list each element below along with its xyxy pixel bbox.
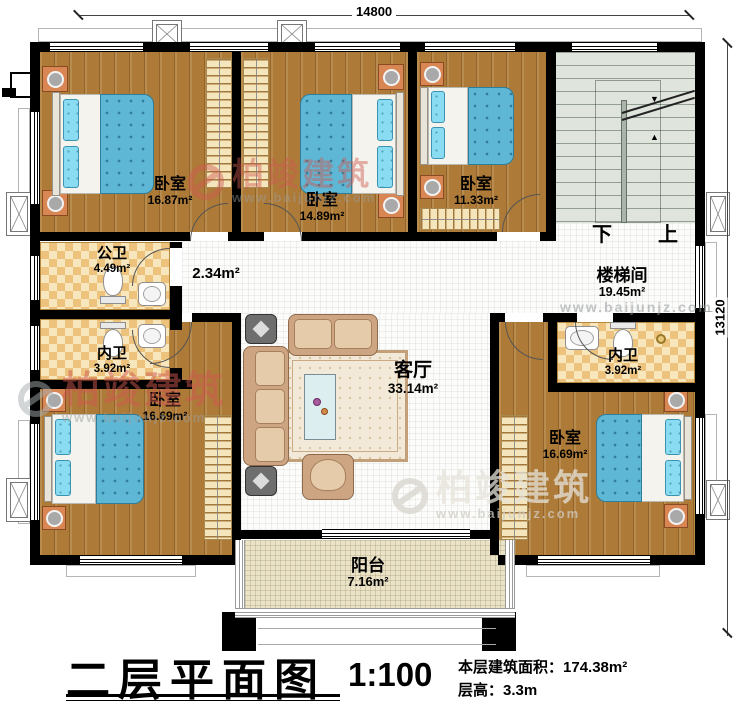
bath-left-name: 内卫 xyxy=(77,346,147,363)
hallway-area: 2.34m² xyxy=(180,266,252,283)
bedroom-tr-pillow-1 xyxy=(431,91,445,123)
bedroom-br-area: 16.69m² xyxy=(525,448,605,461)
title-scale: 1:100 xyxy=(348,656,432,694)
bath-left-toilet-tank xyxy=(100,322,126,329)
wall-living-east xyxy=(490,313,499,539)
stair-arrow-up-icon: ▲ xyxy=(650,132,659,142)
bedroom-bl-pillow-1 xyxy=(55,419,71,455)
bedroom-tl-label: 卧室 16.87m² xyxy=(130,176,210,207)
wall-bath-divider xyxy=(40,310,182,319)
public-bath-toilet-tank xyxy=(100,296,126,304)
sofa-left-cushion-2 xyxy=(255,389,285,424)
sofa-top-cushion-1 xyxy=(294,319,332,349)
wall-corridor-top-2 xyxy=(228,232,264,241)
window-bottom-br xyxy=(538,555,650,565)
bedroom-bl-headboard xyxy=(44,416,52,502)
wall-bath-east-1 xyxy=(170,242,182,248)
window-top-stair xyxy=(572,42,657,52)
bedroom-bl-nightstand-1 xyxy=(42,388,66,412)
bedroom-tm-area: 14.89m² xyxy=(282,210,362,223)
balcony-name: 阳台 xyxy=(330,556,406,575)
window-left-bath xyxy=(30,326,40,370)
wall-br-top-1 xyxy=(490,313,505,322)
bedroom-tr-wardrobe xyxy=(420,208,500,230)
window-left-pubbath xyxy=(30,256,40,300)
bedroom-tr-nightstand-1 xyxy=(420,62,444,86)
title-height-label: 层高： xyxy=(458,682,503,699)
stairs-up-label: 上 xyxy=(650,224,686,246)
bedroom-br-wardrobe xyxy=(501,415,528,540)
chimney-flue xyxy=(2,88,16,97)
balcony-label: 阳台 7.16m² xyxy=(330,556,406,590)
wall-corridor-top-3 xyxy=(302,232,497,241)
living-area: 33.14m² xyxy=(370,381,456,396)
balcony-rail-left xyxy=(235,540,245,612)
bedroom-br-pillow-1 xyxy=(665,419,681,455)
stairwell-area: 19.45m² xyxy=(582,285,662,299)
bedroom-tm-headboard xyxy=(396,92,404,196)
bedroom-tr-bed xyxy=(468,87,514,165)
living-coffee-table xyxy=(304,374,336,440)
window-top-tl xyxy=(50,42,143,52)
title-area-label: 本层建筑面积： xyxy=(458,659,563,676)
balcony-rail-right xyxy=(505,540,515,612)
window-bottom-bl xyxy=(80,555,182,565)
wall-tl-tm xyxy=(232,52,241,232)
bedroom-br-headboard xyxy=(684,416,692,500)
bedroom-br-name: 卧室 xyxy=(525,430,605,448)
dim-width-value: 14800 xyxy=(352,4,396,19)
bedroom-tm-name: 卧室 xyxy=(282,192,362,210)
bedroom-tm-pillow-1 xyxy=(377,99,393,141)
bedroom-tm-label: 卧室 14.89m² xyxy=(282,192,362,223)
living-end-table-top xyxy=(245,314,277,344)
wall-living-south-2 xyxy=(470,530,490,539)
bedroom-bl-area: 16.69m² xyxy=(125,410,205,423)
public-bath-area: 4.49m² xyxy=(77,263,147,276)
window-left-bl xyxy=(30,424,40,520)
wall-corridor-top-4 xyxy=(540,232,556,241)
armchair-cushion xyxy=(310,459,346,491)
wall-bath-right-bottom xyxy=(557,383,695,392)
sofa-top-cushion-2 xyxy=(334,319,372,349)
bedroom-tm-bed xyxy=(300,94,352,194)
bedroom-br-nightstand-2 xyxy=(664,504,688,528)
balcony-area: 7.16m² xyxy=(330,575,406,590)
balcony-sliding-door xyxy=(322,529,470,539)
bedroom-tl-area: 16.87m² xyxy=(130,194,210,207)
bedroom-tr-headboard xyxy=(420,87,428,165)
public-bath-label: 公卫 4.49m² xyxy=(77,246,147,276)
balcony-rail-bottom xyxy=(235,608,515,618)
coffee-table-flower-1 xyxy=(313,398,321,406)
living-label: 客厅 33.14m² xyxy=(370,360,456,396)
balcony-step-1 xyxy=(258,628,496,629)
stairwell-name: 楼梯间 xyxy=(582,266,662,285)
bedroom-br-pillow-2 xyxy=(665,460,681,496)
window-left-tl xyxy=(30,112,40,204)
title-underline xyxy=(66,694,340,701)
title-area-row: 本层建筑面积：174.38m² xyxy=(458,656,627,677)
sofa-left-cushion-3 xyxy=(255,427,285,462)
bedroom-bl-label: 卧室 16.69m² xyxy=(125,392,205,423)
bedroom-tl-pillow-1 xyxy=(63,99,79,141)
wall-patch-br xyxy=(490,539,499,555)
bedroom-bl-nightstand-2 xyxy=(42,506,66,530)
bottom-sill-left xyxy=(66,565,196,577)
window-right-br xyxy=(695,418,705,514)
window-top-tr xyxy=(425,42,515,52)
bedroom-bl-pillow-2 xyxy=(55,460,71,496)
wall-bath-left-bottom xyxy=(40,380,192,389)
wall-tr-stair xyxy=(546,42,556,240)
bedroom-tr-label: 卧室 11.33m² xyxy=(436,176,516,207)
bath-left-area: 3.92m² xyxy=(77,363,147,376)
bedroom-tr-name: 卧室 xyxy=(436,176,516,194)
stairwell-label: 楼梯间 19.45m² xyxy=(582,266,662,299)
dim-line-right xyxy=(727,44,728,636)
floor-plan-canvas: ▼ ▲ xyxy=(0,0,750,709)
bedroom-tl-pillow-2 xyxy=(63,146,79,188)
wall-tm-tr xyxy=(408,52,417,232)
bedroom-tm-nightstand-1 xyxy=(378,64,404,90)
bedroom-tr-pillow-2 xyxy=(431,127,445,159)
stair-arrow-down-icon: ▼ xyxy=(650,94,659,104)
bedroom-bl-name: 卧室 xyxy=(125,392,205,410)
bath-left-label: 内卫 3.92m² xyxy=(77,346,147,376)
coffee-table-flower-2 xyxy=(321,408,328,415)
wall-left-patch xyxy=(30,313,40,322)
top-sill-band xyxy=(38,28,702,42)
dim-height-value: 13120 xyxy=(713,297,728,337)
window-top-tm xyxy=(315,42,400,52)
bedroom-tl-name: 卧室 xyxy=(130,176,210,194)
bedroom-tm-wardrobe xyxy=(243,58,269,188)
title-height-row: 层高：3.3m xyxy=(458,679,537,700)
wall-corridor-top-1 xyxy=(30,232,190,241)
bath-right-area: 3.92m² xyxy=(588,365,658,378)
bath-right-name: 内卫 xyxy=(588,348,658,365)
wall-bath-right-west xyxy=(548,322,557,392)
bedroom-br-label: 卧室 16.69m² xyxy=(525,430,605,461)
stairs-down-label: 下 xyxy=(584,224,620,246)
wall-br-top-2 xyxy=(543,313,577,322)
bath-right-toilet-tank xyxy=(610,322,636,329)
bedroom-bl-wardrobe xyxy=(204,415,232,540)
window-right-stair xyxy=(695,246,705,308)
living-end-table-bottom xyxy=(245,466,277,496)
bedroom-tl-wardrobe xyxy=(206,58,232,188)
pilaster-window-left-1 xyxy=(6,192,32,236)
bath-right-label: 内卫 3.92m² xyxy=(588,348,658,378)
pilaster-window-left-2 xyxy=(6,478,32,522)
bottom-sill-right xyxy=(526,565,660,577)
title-area-value: 174.38m² xyxy=(563,659,627,676)
bedroom-bl-bed xyxy=(96,414,144,504)
bedroom-tl-nightstand-1 xyxy=(42,66,68,92)
wall-br-top-3 xyxy=(613,313,695,322)
bath-right-drain xyxy=(656,334,666,344)
bedroom-tr-area: 11.33m² xyxy=(436,194,516,207)
bedroom-tl-headboard xyxy=(52,92,60,196)
public-bath-name: 公卫 xyxy=(77,246,147,263)
title-height-value: 3.3m xyxy=(503,682,537,699)
living-name: 客厅 xyxy=(370,360,456,381)
window-top-ward xyxy=(190,42,268,52)
wall-living-west xyxy=(232,313,241,539)
sofa-left-cushion-1 xyxy=(255,351,285,386)
bedroom-tm-pillow-2 xyxy=(377,146,393,188)
wall-living-south-1 xyxy=(241,530,322,539)
hallway-label: 2.34m² xyxy=(180,266,252,283)
